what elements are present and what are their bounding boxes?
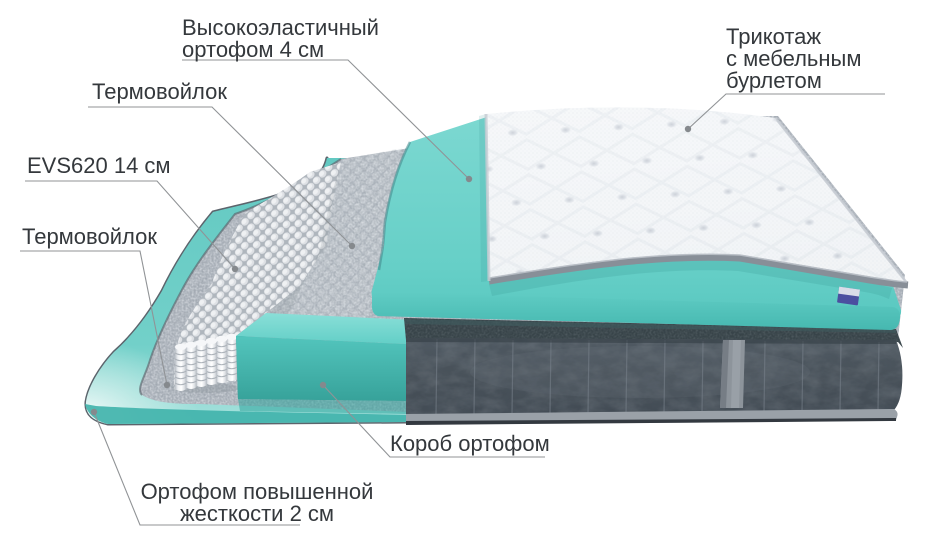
- svg-text:EVS620 14 см: EVS620 14 см: [27, 153, 171, 178]
- svg-text:Термовойлок: Термовойлок: [22, 224, 157, 249]
- svg-text:Короб ортофом: Короб ортофом: [390, 431, 550, 456]
- svg-text:жесткости 2 см: жесткости 2 см: [180, 501, 334, 526]
- svg-text:Термовойлок: Термовойлок: [92, 79, 227, 104]
- svg-text:ортофом 4 см: ортофом 4 см: [182, 37, 324, 62]
- svg-text:бурлетом: бурлетом: [726, 68, 822, 93]
